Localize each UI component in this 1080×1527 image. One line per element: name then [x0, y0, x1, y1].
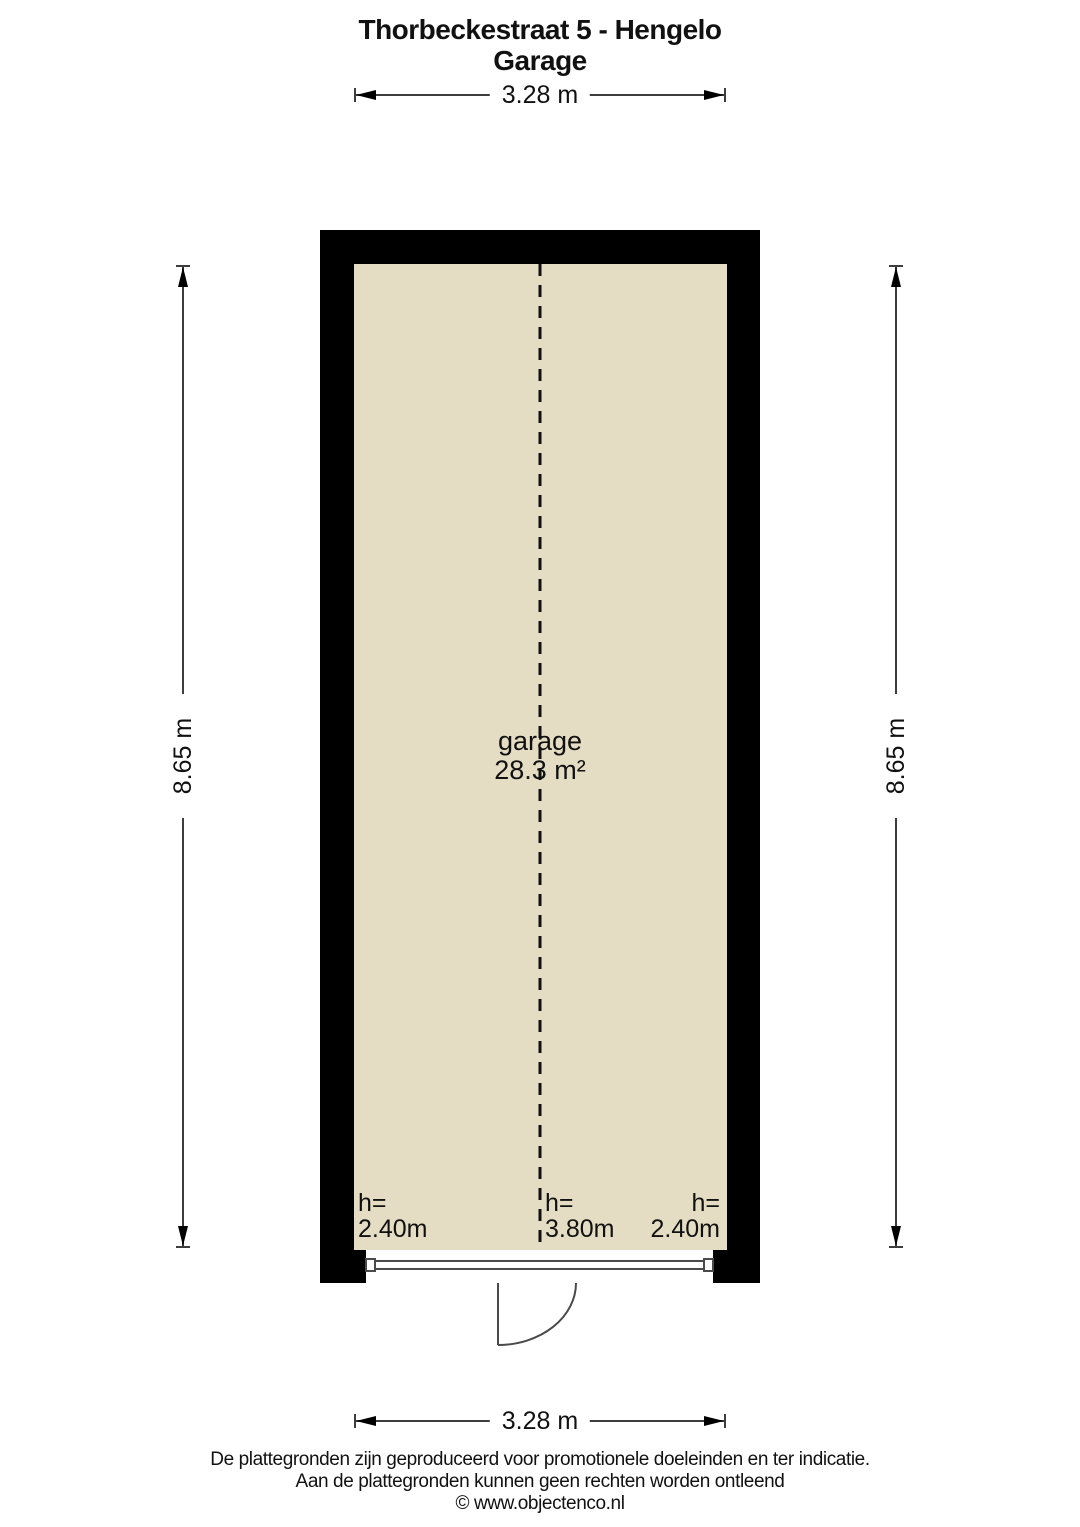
- footer-disclaimer-line1: De plattegronden zijn geproduceerd voor …: [0, 1449, 1080, 1471]
- dimension-width-top-label: 3.28 m: [490, 80, 590, 110]
- dimension-width-bottom-label: 3.28 m: [490, 1406, 590, 1436]
- ceiling-height-prefix: h=: [545, 1190, 614, 1216]
- ceiling-height-value: 3.80m: [545, 1216, 614, 1242]
- footer-disclaimer-line2: Aan de plattegronden kunnen geen rechten…: [0, 1471, 1080, 1493]
- ceiling-height-value: 2.40m: [651, 1216, 720, 1242]
- room-name: garage: [0, 727, 1080, 756]
- floorplan-canvas: Thorbeckestraat 5 - Hengelo Garage 3.28 …: [0, 0, 1080, 1527]
- title-block: Thorbeckestraat 5 - Hengelo Garage: [0, 14, 1080, 76]
- garage-door: [366, 1259, 713, 1271]
- ceiling-height-right: h= 2.40m: [651, 1190, 720, 1242]
- ceiling-height-prefix: h=: [358, 1190, 427, 1216]
- page-title: Thorbeckestraat 5 - Hengelo: [0, 14, 1080, 45]
- door-swing: [498, 1283, 576, 1345]
- ceiling-height-value: 2.40m: [358, 1216, 427, 1242]
- room-area: 28.3 m²: [0, 756, 1080, 785]
- footer-copyright: © www.objectenco.nl: [0, 1493, 1080, 1515]
- footer-disclaimer: De plattegronden zijn geproduceerd voor …: [0, 1449, 1080, 1515]
- room-label: garage 28.3 m²: [0, 727, 1080, 785]
- ceiling-height-center: h= 3.80m: [545, 1190, 614, 1242]
- ceiling-height-left: h= 2.40m: [358, 1190, 427, 1242]
- ceiling-height-prefix: h=: [651, 1190, 720, 1216]
- page-subtitle: Garage: [0, 45, 1080, 76]
